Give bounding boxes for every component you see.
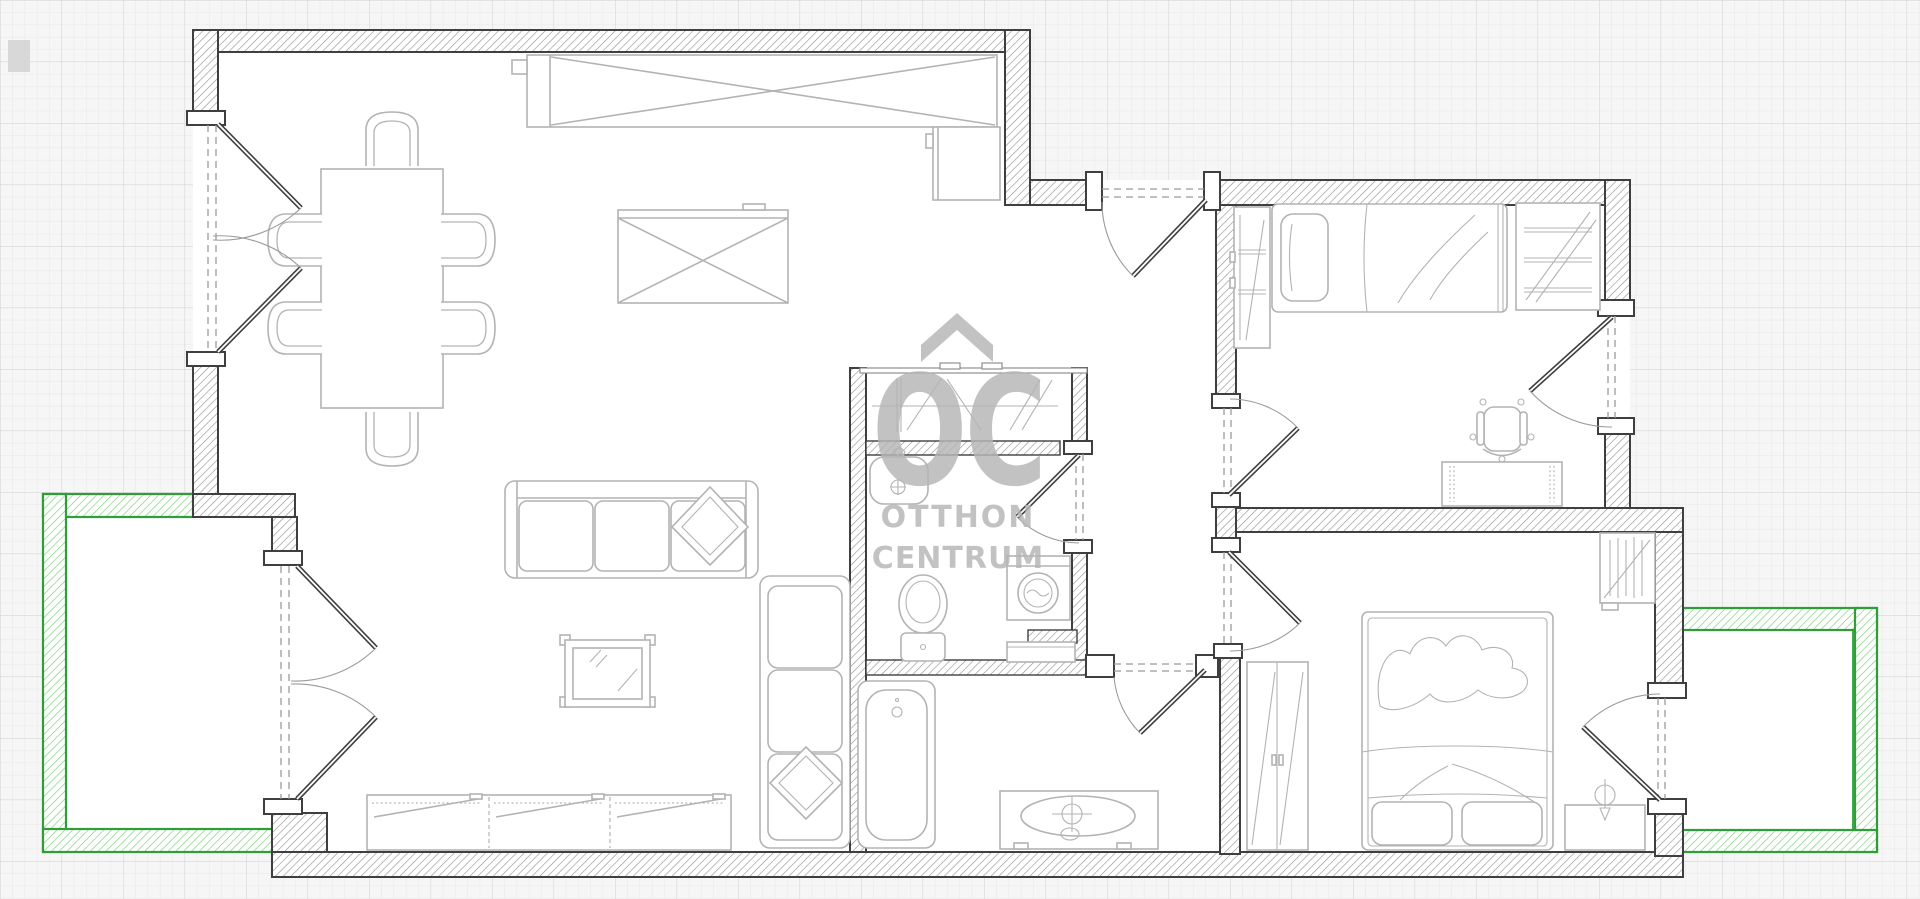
kitchen-island xyxy=(618,210,788,303)
floor-plan-screenshot: OC OTTHON CENTRUM xyxy=(0,0,1920,899)
dining-chair xyxy=(268,214,322,266)
wc-cabinet xyxy=(1007,642,1075,662)
floor-plan-drawing: OC OTTHON CENTRUM xyxy=(0,0,1920,899)
dining-chair xyxy=(366,112,418,166)
screen-artifact xyxy=(8,40,30,72)
kitchen-counter xyxy=(527,55,997,127)
bed-pillow xyxy=(1281,214,1328,301)
toilet-tank xyxy=(901,633,945,661)
tv-sideboard xyxy=(367,794,731,850)
watermark-logo-text: OC xyxy=(872,343,1044,520)
fridge-handle xyxy=(926,134,933,148)
bed-pillow xyxy=(1462,802,1542,845)
dining-chair xyxy=(268,302,322,354)
bed-pillow xyxy=(1372,802,1452,845)
hall-closet xyxy=(1234,207,1270,348)
watermark-line2: CENTRUM xyxy=(872,541,1044,576)
watermark-line1: OTTHON xyxy=(881,500,1036,535)
counter-tap xyxy=(512,60,527,74)
dining-chair xyxy=(366,412,418,466)
bathtub xyxy=(858,681,935,848)
desk xyxy=(1442,462,1562,506)
dining-chair xyxy=(441,214,495,266)
coffee-mirror-table xyxy=(560,635,655,707)
dining-chair xyxy=(441,302,495,354)
dining-table xyxy=(321,169,443,408)
nightstand xyxy=(1565,805,1645,850)
fridge xyxy=(933,127,1000,200)
